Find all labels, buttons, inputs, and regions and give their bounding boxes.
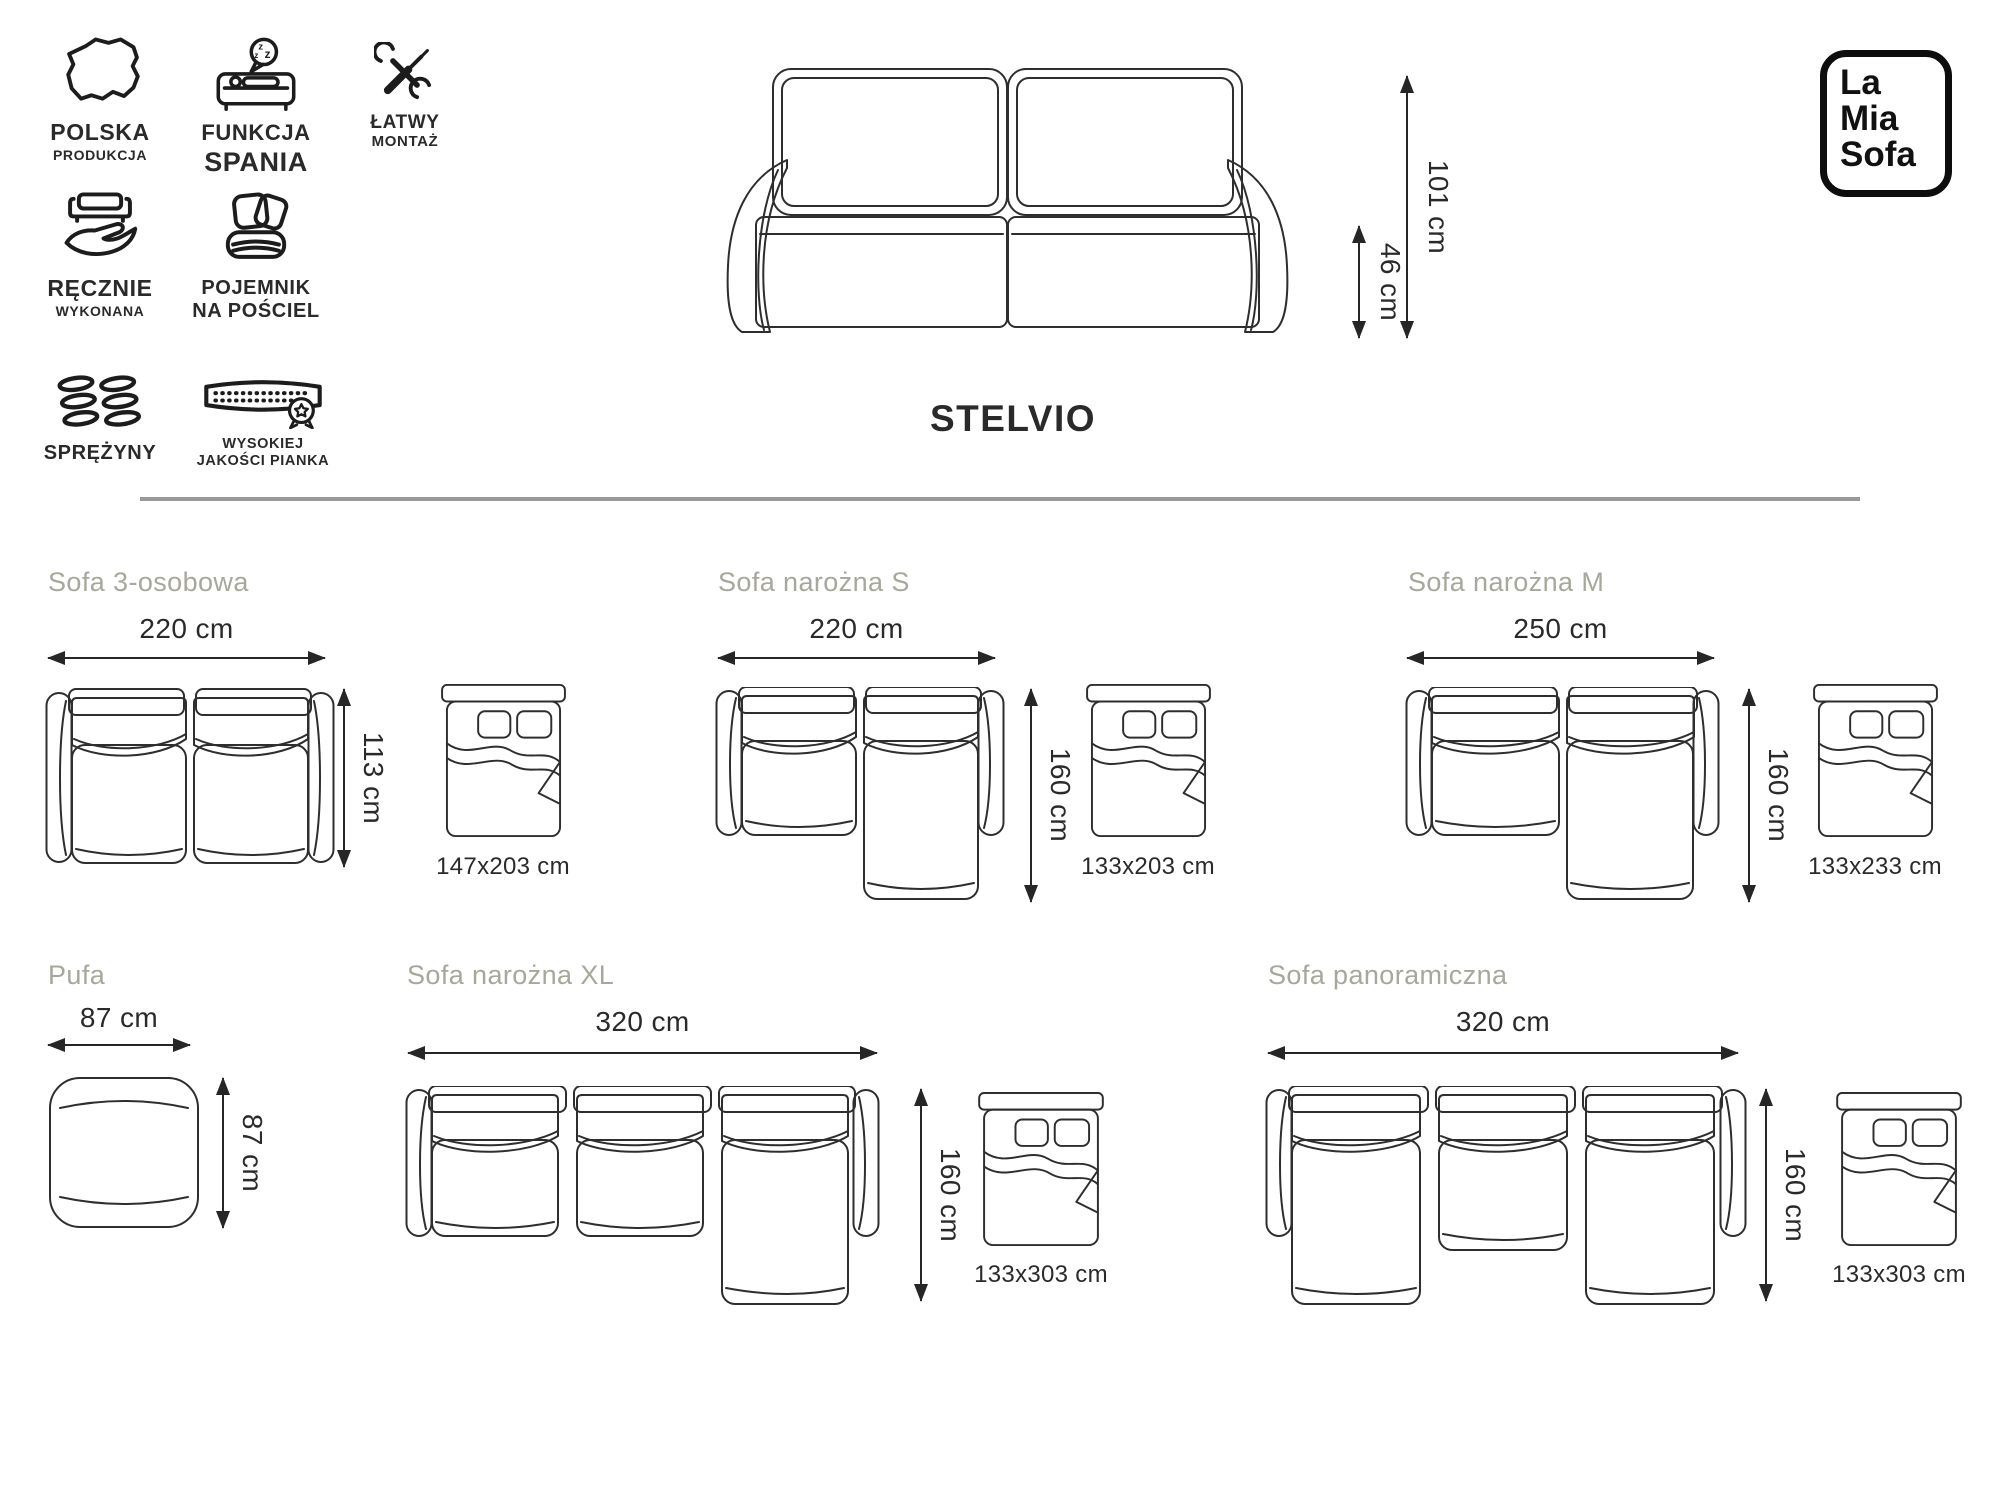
- variant-title: Sofa narożna XL: [407, 960, 614, 991]
- feature-label: POLSKA: [50, 120, 149, 146]
- variant-width-label: 250 cm: [1407, 613, 1714, 645]
- depth-arrow: [1030, 689, 1032, 902]
- sofa-top-view-drawing: [45, 687, 335, 868]
- depth-arrow: [343, 689, 345, 867]
- svg-text:z: z: [265, 48, 271, 61]
- variant-depth-label: 160 cm: [1044, 748, 1076, 842]
- feature-label: ŁATWY: [370, 112, 439, 133]
- feature-sublabel: SPANIA: [204, 147, 308, 177]
- bed-size-label: 133x303 cm: [966, 1261, 1116, 1289]
- corner-sofa-xl-top-view-drawing: [405, 1086, 880, 1308]
- feature-handmade: RĘCZNIE WYKONANA: [30, 190, 170, 319]
- bed-size-label: 147x203 cm: [433, 853, 573, 881]
- variant-width-label: 320 cm: [1268, 1006, 1738, 1038]
- variant-title: Sofa narożna S: [718, 567, 910, 598]
- variant-width-label: 220 cm: [718, 613, 995, 645]
- width-arrow: [1407, 657, 1714, 659]
- variant-sofa-3-osobowa: Sofa 3-osobowa 220 cm: [40, 565, 640, 925]
- seat-height-label: 46 cm: [1374, 243, 1406, 321]
- foam-quality-icon: [199, 372, 327, 429]
- logo-line: La: [1840, 65, 1945, 101]
- bedding-storage-icon: [212, 190, 300, 271]
- width-arrow: [48, 657, 325, 659]
- feature-sleep-function: z z z FUNKCJA SPANIA: [180, 36, 332, 177]
- seat-height-arrow: [1358, 226, 1360, 338]
- variant-width-label: 220 cm: [48, 613, 325, 645]
- depth-arrow: [920, 1089, 922, 1301]
- feature-label: POJEMNIK: [201, 277, 310, 299]
- tools-icon: [374, 42, 436, 104]
- variant-pufa: Pufa 87 cm 87 cm: [40, 958, 340, 1288]
- width-arrow: [1268, 1052, 1738, 1054]
- panoramic-sofa-top-view-drawing: [1265, 1086, 1747, 1308]
- depth-arrow: [1748, 689, 1750, 902]
- bed-top-view-icon: [1812, 683, 1939, 839]
- feature-bedding-storage: POJEMNIK NA POŚCIEL: [180, 190, 332, 323]
- variant-width-label: 320 cm: [408, 1006, 877, 1038]
- bed-top-view-icon: [1085, 683, 1212, 839]
- feature-sublabel: WYKONANA: [56, 304, 145, 320]
- variant-sofa-narozna-m: Sofa narożna M 250 cm: [1400, 565, 1990, 945]
- variant-sofa-narozna-s: Sofa narożna S 220 cm: [710, 565, 1310, 945]
- variant-title: Sofa narożna M: [1408, 567, 1604, 598]
- variant-title: Sofa 3-osobowa: [48, 567, 249, 598]
- bed-size-label: 133x233 cm: [1805, 853, 1945, 881]
- variant-title: Sofa panoramiczna: [1268, 960, 1507, 991]
- feature-label: FUNKCJA: [201, 121, 310, 146]
- feature-easy-assembly: ŁATWY MONTAŻ: [350, 42, 460, 151]
- bed-top-view-icon: [1835, 1091, 1963, 1248]
- feature-foam-quality: WYSOKIEJ JAKOŚCI PIANKA: [178, 372, 348, 469]
- bed-size-label: 133x203 cm: [1078, 853, 1218, 881]
- svg-text:z: z: [254, 51, 258, 60]
- feature-poland-production: POLSKA PRODUKCJA: [30, 36, 170, 163]
- logo-line: Sofa: [1840, 137, 1945, 173]
- bed-top-view-icon: [440, 683, 567, 839]
- feature-label: SPRĘŻYNY: [44, 442, 157, 464]
- logo-line: Mia: [1840, 101, 1945, 137]
- feature-sublabel: JAKOŚCI PIANKA: [197, 453, 329, 469]
- feature-label: RĘCZNIE: [47, 276, 152, 302]
- variant-sofa-panoramiczna: Sofa panoramiczna 320 cm: [1260, 958, 1990, 1338]
- feature-sublabel: PRODUKCJA: [53, 148, 147, 164]
- total-height-arrow: [1406, 76, 1408, 338]
- product-name: STELVIO: [930, 398, 1096, 440]
- variant-depth-label: 160 cm: [934, 1148, 966, 1242]
- variant-depth-label: 160 cm: [1779, 1148, 1811, 1242]
- width-arrow: [408, 1052, 877, 1054]
- variant-sofa-narozna-xl: Sofa narożna XL 320 cm: [400, 958, 1130, 1338]
- handmade-icon: [56, 190, 144, 271]
- feature-springs: SPRĘŻYNY: [30, 372, 170, 464]
- section-divider: [140, 497, 1860, 501]
- spec-sheet: { "brand": {"line1": "La", "line2": "Mia…: [0, 0, 2000, 1500]
- variant-depth-label: 113 cm: [357, 732, 389, 824]
- poland-map-icon: [57, 36, 143, 115]
- sofa-front-view-drawing: [690, 56, 1325, 343]
- feature-sublabel: MONTAŻ: [372, 134, 439, 151]
- variant-depth-label: 160 cm: [1762, 748, 1794, 842]
- svg-text:z: z: [258, 41, 263, 52]
- corner-sofa-top-view-drawing: [715, 687, 1005, 902]
- sleep-function-icon: z z z: [212, 36, 300, 115]
- depth-arrow: [222, 1078, 224, 1228]
- bed-size-label: 133x303 cm: [1824, 1261, 1974, 1289]
- pouf-top-view-drawing: [48, 1076, 200, 1229]
- feature-sublabel: NA POŚCIEL: [192, 300, 320, 322]
- width-arrow: [48, 1044, 190, 1046]
- bed-top-view-icon: [977, 1091, 1105, 1248]
- variant-title: Pufa: [48, 960, 105, 991]
- total-height-label: 101 cm: [1422, 160, 1454, 254]
- brand-logo: La Mia Sofa: [1820, 50, 1952, 197]
- variant-width-label: 87 cm: [48, 1002, 190, 1034]
- depth-arrow: [1765, 1089, 1767, 1301]
- feature-label: WYSOKIEJ: [222, 436, 303, 452]
- variant-depth-label: 87 cm: [236, 1114, 268, 1192]
- width-arrow: [718, 657, 995, 659]
- springs-icon: [53, 372, 147, 434]
- corner-sofa-top-view-drawing: [1405, 687, 1720, 902]
